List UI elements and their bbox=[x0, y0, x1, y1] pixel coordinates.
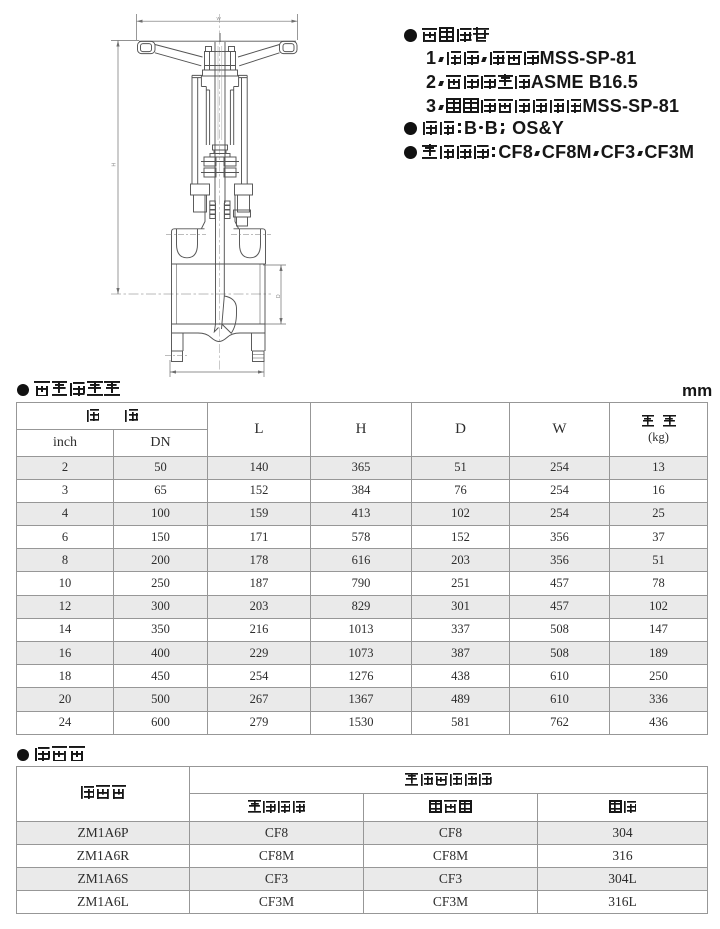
svg-text:W: W bbox=[217, 16, 222, 21]
svg-text:H: H bbox=[112, 163, 118, 167]
svg-text:D: D bbox=[276, 294, 282, 298]
